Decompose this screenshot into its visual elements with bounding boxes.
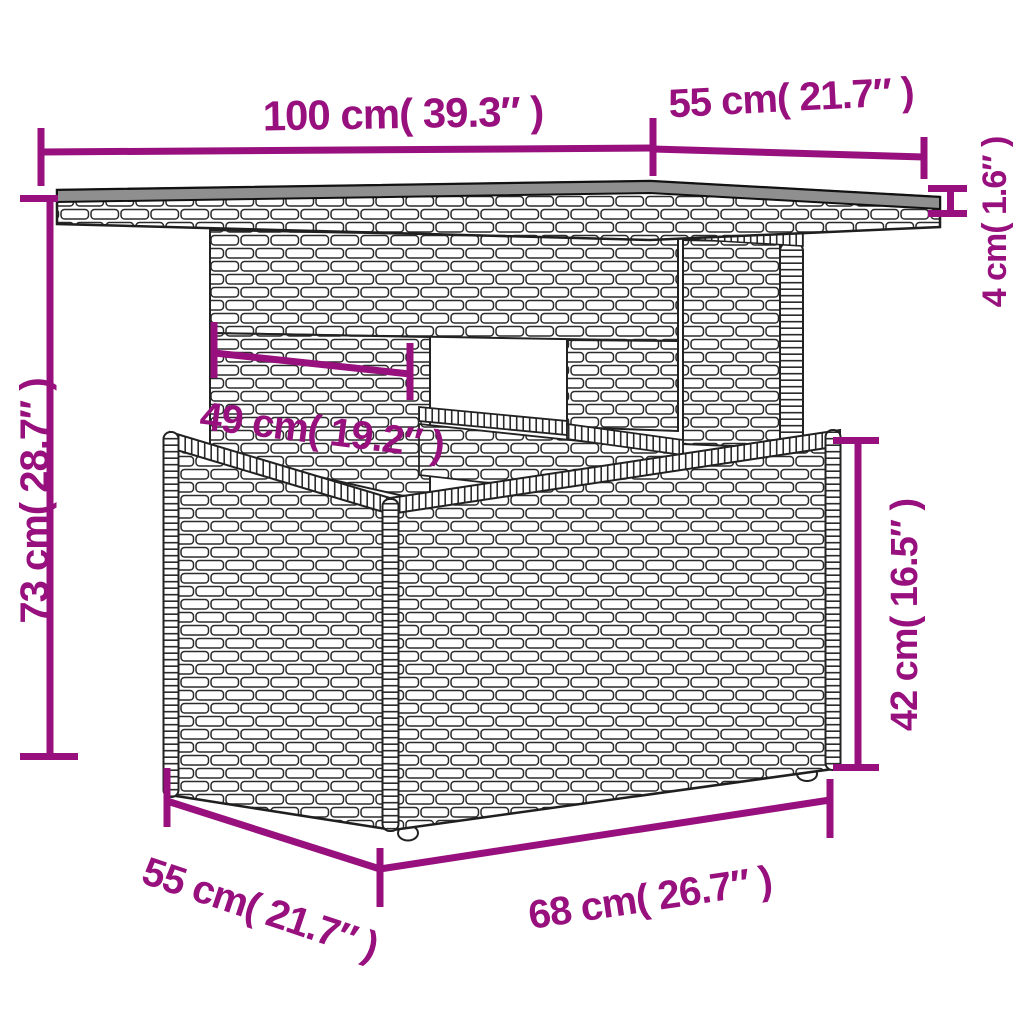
dim-line-top-width [41,148,653,152]
base-corner-roll-right [826,430,841,770]
apron-panel [210,230,678,341]
side-leg-panel [683,240,780,448]
tabletop [57,181,940,240]
dim-line-top-depth [653,149,924,157]
dim-label-base-height: 42 cm( 16.5″ ) [886,499,924,731]
dim-label-overall-height: 73 cm( 28.7″ ) [15,378,55,623]
dim-label-top-width: 100 cm( 39.3″ ) [262,91,543,138]
base-corner-roll-left [164,432,179,797]
base-corner-roll-front [383,499,399,831]
dimension-diagram: 100 cm( 39.3″ ) 55 cm( 21.7″ ) 4 cm( 1.6… [0,0,1024,1024]
right-leg-panel [567,340,678,431]
base-box [164,430,841,841]
dim-label-top-thickness: 4 cm( 1.6″ ) [978,137,1012,308]
side-leg-corner-roll [780,242,803,448]
